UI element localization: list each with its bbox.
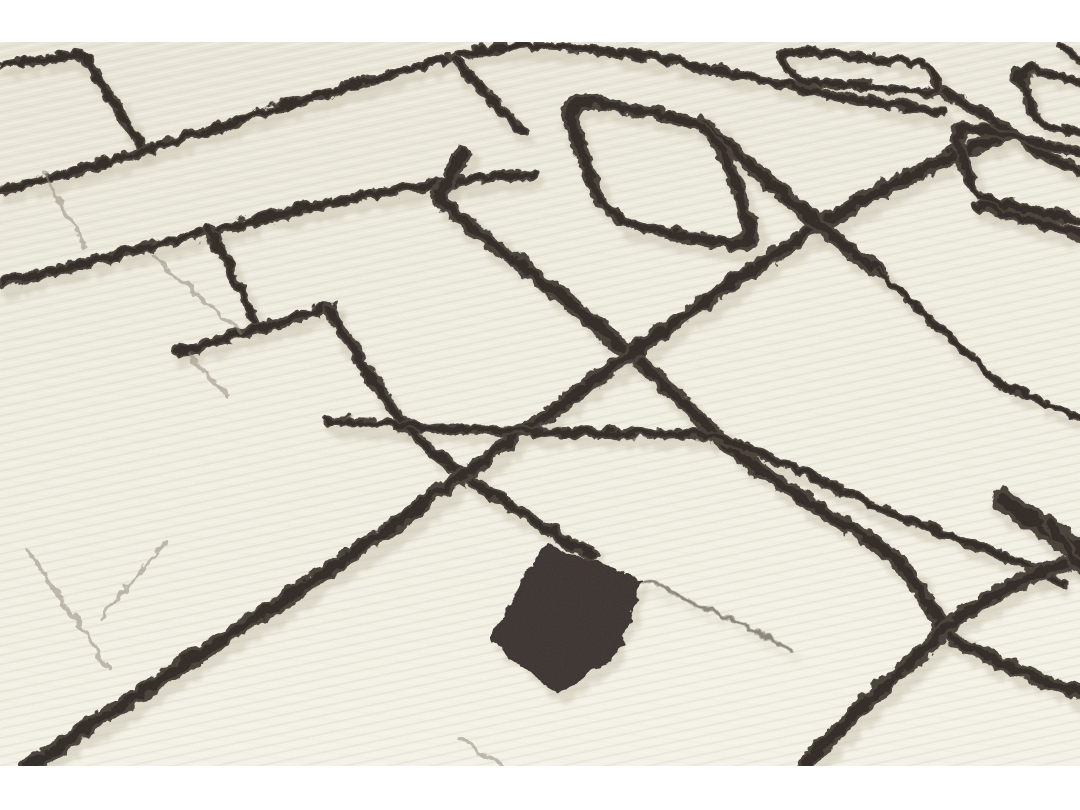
wool-grain-overlay	[0, 42, 1080, 766]
rug-photo	[0, 0, 1080, 810]
matte-band-bottom	[0, 766, 1080, 810]
matte-band-top	[0, 0, 1080, 42]
rug-product-photo-page	[0, 0, 1080, 810]
